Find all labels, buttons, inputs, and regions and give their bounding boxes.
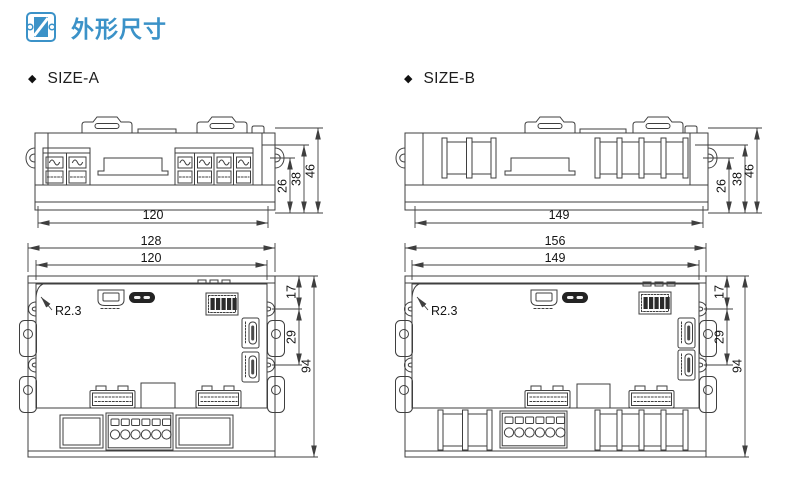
dim-label: 46 (304, 164, 318, 178)
dimension-icon (24, 10, 58, 44)
side-connector (242, 318, 259, 348)
terminal-block-left (43, 148, 90, 185)
nameplate (505, 158, 575, 175)
dip-switch (639, 292, 671, 314)
dim-label: 120 (141, 251, 162, 265)
nameplate (98, 158, 168, 175)
radius-label: R2.3 (431, 304, 457, 318)
dimension-heights: 17 29 94 (704, 276, 749, 457)
size-b-front-view-drawing: 156 149 R2.3 (393, 236, 773, 471)
dimension-drawing-page: 外形尺寸 ◆ SIZE-A ◆ SIZE-B (0, 0, 790, 494)
dim-label: 26 (276, 179, 290, 193)
dim-label: 29 (713, 330, 727, 344)
device-body-side (405, 126, 708, 210)
dim-label: 17 (713, 285, 727, 299)
size-b-heading: ◆ SIZE-B (404, 70, 475, 88)
size-b-label: SIZE-B (423, 70, 475, 88)
diamond-bullet-icon: ◆ (404, 74, 412, 85)
dim-label: 94 (300, 359, 314, 373)
dim-label: 149 (545, 251, 566, 265)
dimension-heights: 17 29 94 (272, 276, 318, 457)
mounting-ear (268, 321, 285, 357)
usb-c-connector (129, 292, 155, 303)
radius-label: R2.3 (55, 304, 81, 318)
mini-usb-connector (98, 290, 124, 309)
side-connector (678, 350, 695, 380)
center-block (577, 384, 610, 408)
corner-radius-callout: R2.3 (417, 297, 457, 318)
size-b-side-view-drawing: 149 26 38 46 (393, 106, 773, 232)
mounting-tab (82, 117, 132, 133)
dim-label: 149 (549, 208, 570, 222)
dim-label: 17 (285, 285, 299, 299)
dim-label: 38 (290, 172, 304, 186)
mini-usb-connector (531, 290, 557, 309)
bottom-terminal-blocks (60, 415, 233, 448)
terminal-fins-right (595, 138, 688, 178)
terminal-fins-left (442, 138, 496, 178)
size-a-front-view-drawing: 128 120 R2.3 (18, 236, 328, 471)
side-connector (242, 352, 259, 382)
mounting-tab (197, 117, 247, 133)
page-header: 外形尺寸 (24, 10, 167, 44)
multi-pin-connector (629, 386, 674, 408)
terminal-fins-left (438, 410, 492, 450)
dim-label: 128 (141, 234, 162, 248)
size-a-heading: ◆ SIZE-A (28, 70, 99, 88)
power-terminal-block (106, 413, 173, 450)
dim-label: 29 (285, 330, 299, 344)
dim-label: 156 (545, 234, 566, 248)
dimension-width-149: 149 (415, 206, 703, 228)
mounting-tab (525, 117, 575, 133)
corner-radius-callout: R2.3 (41, 297, 81, 318)
terminal-block-right (175, 148, 253, 185)
dim-label: 120 (143, 208, 164, 222)
dim-label: 94 (731, 359, 745, 373)
usb-c-connector (562, 292, 588, 303)
terminal-fins-right (595, 410, 688, 450)
multi-pin-connector (90, 386, 135, 408)
mounting-ear (268, 377, 285, 413)
diamond-bullet-icon: ◆ (28, 74, 36, 85)
side-connector (678, 318, 695, 348)
size-a-label: SIZE-A (47, 70, 99, 88)
center-block (141, 383, 175, 408)
multi-pin-connector (196, 386, 241, 408)
page-title: 外形尺寸 (71, 10, 167, 44)
dimension-heights: 26 38 46 (262, 128, 323, 213)
power-terminal-block (500, 411, 567, 448)
dim-label: 26 (715, 179, 729, 193)
size-a-side-view-drawing: 120 26 38 46 (18, 106, 336, 232)
dim-label: 46 (743, 164, 757, 178)
mounting-ear (396, 377, 413, 413)
multi-pin-connector (525, 386, 570, 408)
mounting-tab (633, 117, 683, 133)
dimension-width-120: 120 (38, 206, 268, 228)
mounting-ear (396, 321, 413, 357)
dimension-heights: 26 38 46 (695, 128, 762, 213)
dip-switch (206, 293, 238, 315)
mounting-ear (700, 377, 717, 413)
